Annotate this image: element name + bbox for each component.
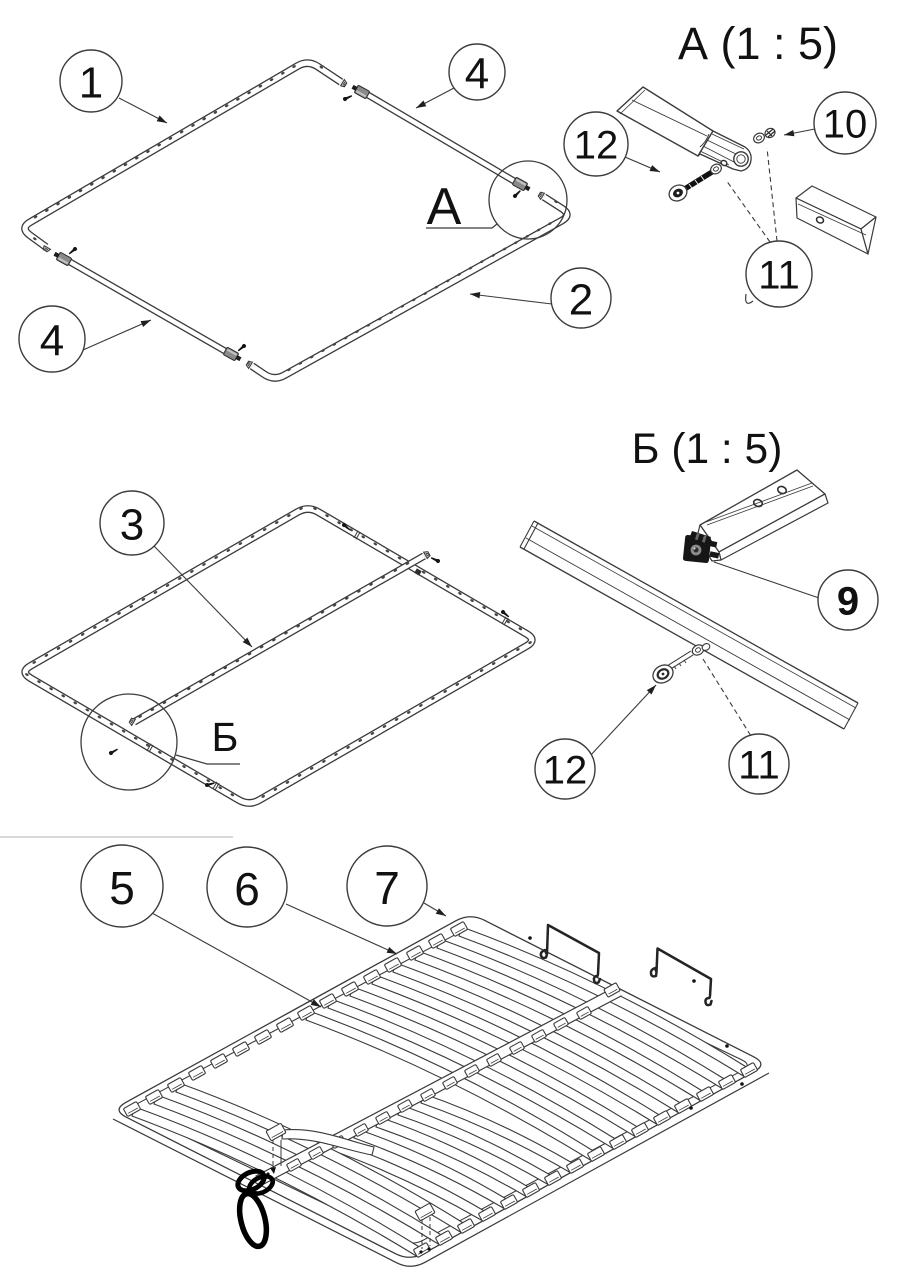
- svg-text:3: 3: [120, 500, 144, 549]
- svg-text:2: 2: [569, 275, 593, 324]
- svg-text:11: 11: [758, 254, 800, 298]
- svg-text:4: 4: [465, 49, 489, 98]
- svg-text:6: 6: [234, 863, 260, 915]
- svg-text:А: А: [427, 178, 462, 236]
- svg-text:10: 10: [823, 103, 868, 147]
- svg-text:4: 4: [40, 316, 64, 365]
- svg-text:1: 1: [79, 58, 103, 107]
- svg-text:12: 12: [543, 749, 588, 793]
- svg-text:7: 7: [374, 862, 400, 914]
- svg-text:А (1 : 5): А (1 : 5): [678, 18, 838, 69]
- svg-text:Б (1 : 5): Б (1 : 5): [632, 426, 783, 473]
- svg-text:Б: Б: [212, 714, 239, 760]
- svg-text:5: 5: [109, 862, 135, 914]
- svg-text:12: 12: [574, 124, 619, 168]
- svg-text:9: 9: [837, 580, 859, 624]
- svg-text:11: 11: [738, 744, 780, 788]
